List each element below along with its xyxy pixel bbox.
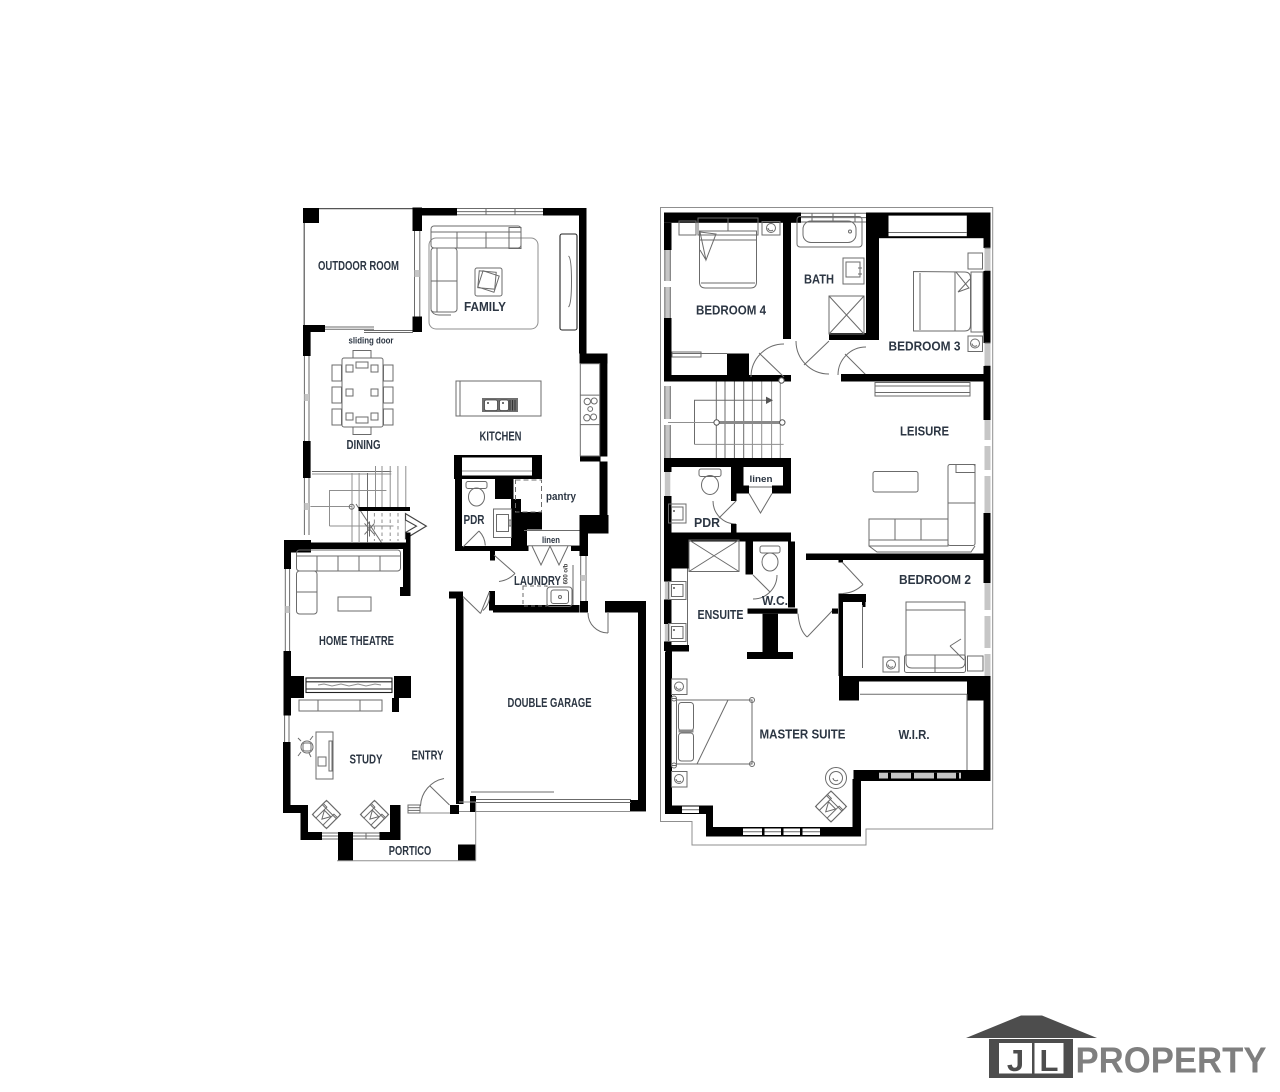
svg-text:ENTRY: ENTRY xyxy=(412,749,445,763)
svg-text:LAUNDRY: LAUNDRY xyxy=(514,574,562,588)
svg-text:BEDROOM 2: BEDROOM 2 xyxy=(899,573,971,587)
svg-text:sliding door: sliding door xyxy=(349,336,394,346)
svg-text:BEDROOM 4: BEDROOM 4 xyxy=(696,304,766,318)
svg-text:pantry: pantry xyxy=(546,491,577,503)
svg-text:PORTICO: PORTICO xyxy=(389,844,432,858)
svg-text:W.C.: W.C. xyxy=(762,594,788,608)
svg-text:PROPERTY: PROPERTY xyxy=(1076,1040,1267,1081)
svg-text:LEISURE: LEISURE xyxy=(900,425,949,439)
svg-text:W.I.R.: W.I.R. xyxy=(899,728,930,742)
svg-text:PDR: PDR xyxy=(464,513,485,527)
svg-text:DOUBLE GARAGE: DOUBLE GARAGE xyxy=(508,696,592,710)
svg-text:HOME THEATRE: HOME THEATRE xyxy=(319,634,394,648)
svg-text:FAMILY: FAMILY xyxy=(464,300,507,314)
svg-text:ENSUITE: ENSUITE xyxy=(698,608,744,622)
svg-text:linen: linen xyxy=(750,474,773,484)
svg-text:DINING: DINING xyxy=(347,438,381,452)
svg-text:600 o/b: 600 o/b xyxy=(564,563,570,584)
svg-text:BATH: BATH xyxy=(804,273,834,287)
svg-text:J: J xyxy=(1007,1043,1024,1078)
svg-text:L: L xyxy=(1040,1043,1059,1078)
svg-text:PDR: PDR xyxy=(694,516,720,530)
svg-text:KITCHEN: KITCHEN xyxy=(480,430,522,444)
svg-text:OUTDOOR ROOM: OUTDOOR ROOM xyxy=(318,259,399,273)
svg-text:linen: linen xyxy=(542,535,560,545)
svg-text:MASTER SUITE: MASTER SUITE xyxy=(760,728,846,742)
svg-text:BEDROOM 3: BEDROOM 3 xyxy=(889,340,961,354)
svg-text:STUDY: STUDY xyxy=(350,753,384,767)
